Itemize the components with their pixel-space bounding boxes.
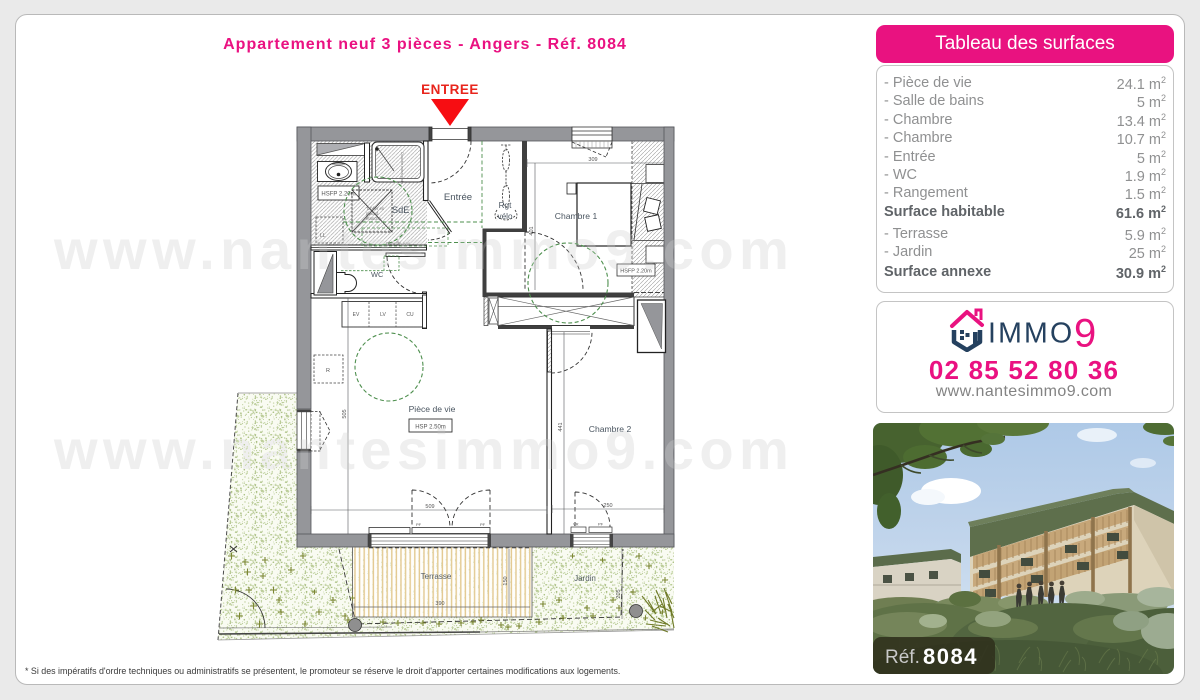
svg-text:309: 309	[588, 157, 597, 163]
svg-text:Réf.: Réf.	[885, 647, 920, 668]
svg-text:205: 205	[616, 589, 622, 598]
svg-text:Pièce de vie: Pièce de vie	[409, 404, 456, 414]
svg-text:PF: PF	[416, 522, 422, 527]
svg-text:Jardin: Jardin	[574, 574, 596, 583]
svg-text:HSFP 2.20m: HSFP 2.20m	[321, 192, 355, 198]
svg-text:CU: CU	[406, 312, 414, 318]
svg-text:R: R	[326, 368, 330, 374]
svg-text:509: 509	[425, 504, 434, 510]
svg-text:LV: LV	[380, 312, 386, 318]
svg-text:Douche extra plate: Douche extra plate	[400, 152, 404, 184]
svg-text:Rgt: Rgt	[499, 201, 512, 210]
svg-text:IMMO: IMMO	[988, 318, 1074, 350]
svg-text:PF: PF	[598, 522, 604, 527]
svg-text:VR: VR	[573, 522, 579, 527]
svg-text:PF: PF	[480, 522, 486, 527]
svg-text:250: 250	[603, 503, 612, 509]
svg-text:9: 9	[1074, 312, 1096, 353]
svg-text:8084: 8084	[923, 644, 978, 669]
svg-text:Terrasse: Terrasse	[421, 572, 452, 581]
svg-text:390: 390	[435, 601, 444, 607]
svg-text:EV: EV	[353, 312, 360, 318]
svg-text:150: 150	[503, 576, 509, 585]
svg-text:SdE: SdE	[392, 205, 409, 215]
svg-text:Entrée: Entrée	[444, 192, 472, 203]
